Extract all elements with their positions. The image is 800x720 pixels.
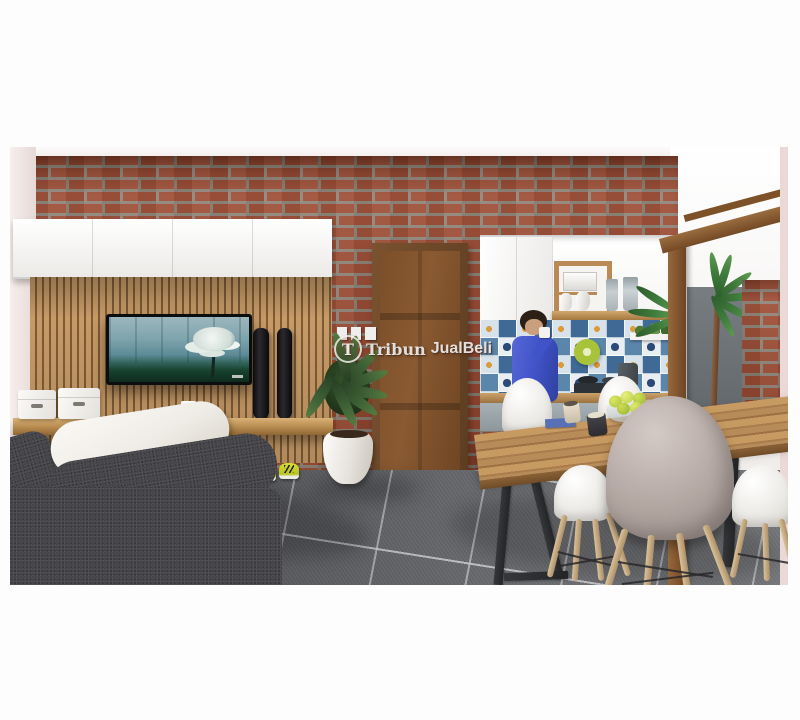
- woman-coffee-cup: [539, 327, 550, 338]
- mug: [586, 413, 608, 437]
- flat-screen-tv: [106, 314, 252, 385]
- ceramic-vase: [560, 293, 572, 311]
- gray-sofa: [10, 487, 282, 585]
- watermark-logo-icon: T: [334, 335, 362, 363]
- tv-screen-forest-image: [109, 317, 249, 382]
- blender-jar: [623, 277, 638, 311]
- green-colander: [574, 339, 600, 365]
- storage-box: [18, 390, 56, 419]
- tv-blossom-tree: [193, 327, 235, 351]
- watermark-text-tribun: Tribun: [366, 340, 426, 359]
- yellow-sneaker: [279, 463, 299, 479]
- page-canvas: T Tribun JualBeli: [0, 0, 800, 720]
- plant-shadow: [310, 477, 420, 501]
- white-upper-cabinets: [13, 219, 332, 279]
- blender-jar: [606, 279, 618, 311]
- interior-render-photo: T Tribun JualBeli: [10, 147, 788, 585]
- tv-brand-logo: [232, 375, 243, 378]
- tower-speaker: [253, 328, 269, 419]
- dining-chair-white-right: [732, 465, 788, 527]
- ceramic-vase: [576, 291, 590, 311]
- kitchen-upper-cabinet: [480, 237, 553, 321]
- watermark: T Tribun JualBeli: [334, 335, 492, 363]
- microwave: [563, 272, 597, 291]
- storage-box: [58, 388, 100, 419]
- watermark-text-jualbeli: JualBeli: [431, 340, 492, 358]
- mug: [563, 402, 581, 424]
